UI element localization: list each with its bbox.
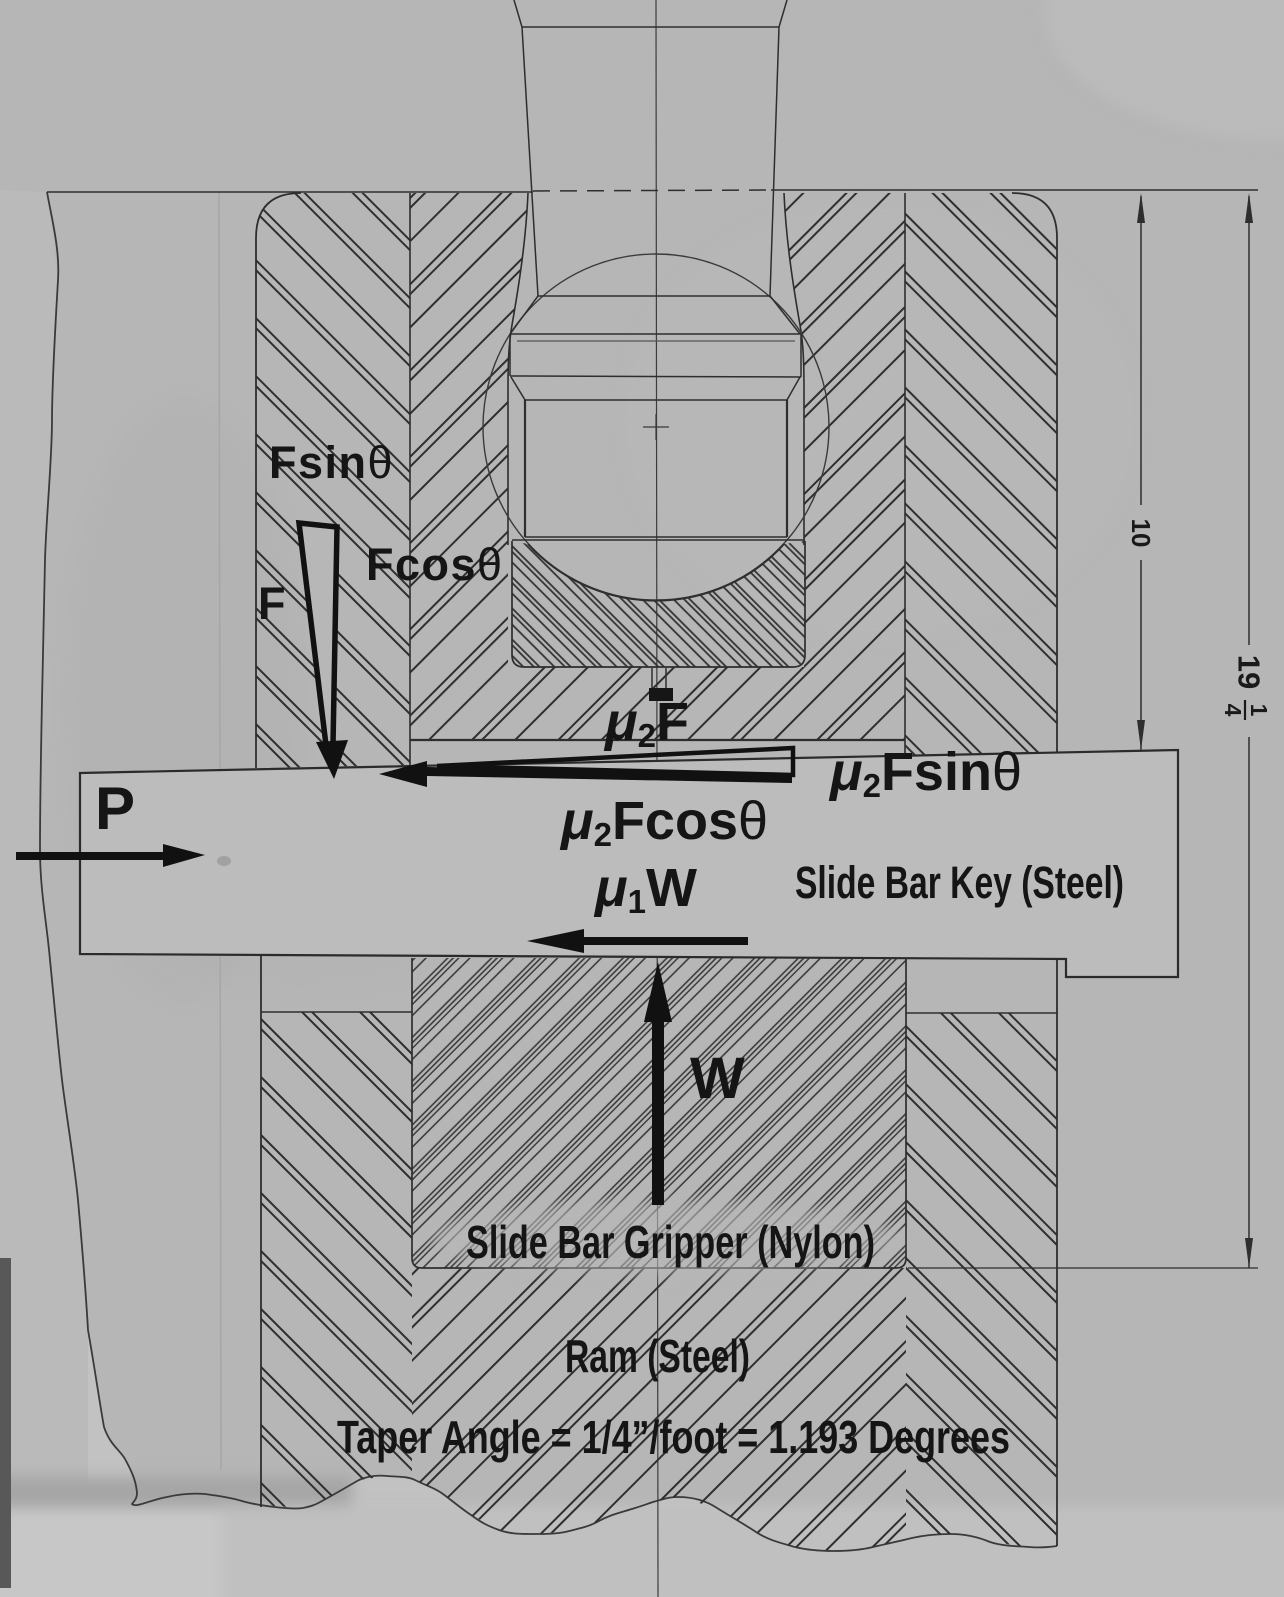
- svg-text:19: 19: [1232, 655, 1267, 689]
- svg-text:Slide Bar Key (Steel): Slide Bar Key (Steel): [795, 857, 1124, 908]
- svg-text:μ1W: μ1W: [593, 858, 697, 920]
- svg-text:W: W: [690, 1046, 745, 1111]
- svg-text:Fcosθ: Fcosθ: [366, 539, 504, 590]
- svg-text:μ2Fcosθ: μ2Fcosθ: [559, 791, 768, 853]
- svg-text:F: F: [258, 578, 286, 629]
- svg-text:4: 4: [1220, 704, 1246, 717]
- svg-text:10: 10: [1126, 519, 1156, 548]
- svg-text:Taper Angle = 1/4”/foot = 1.19: Taper Angle = 1/4”/foot = 1.193 Degrees: [337, 1411, 1010, 1463]
- svg-text:Fsinθ: Fsinθ: [269, 437, 394, 488]
- svg-text:Slide Bar Gripper (Nylon): Slide Bar Gripper (Nylon): [466, 1216, 875, 1268]
- svg-text:Ram (Steel): Ram (Steel): [565, 1330, 750, 1382]
- svg-text:μ2Fsinθ: μ2Fsinθ: [828, 742, 1022, 804]
- svg-text:1: 1: [1246, 704, 1272, 717]
- svg-text:P: P: [95, 775, 135, 842]
